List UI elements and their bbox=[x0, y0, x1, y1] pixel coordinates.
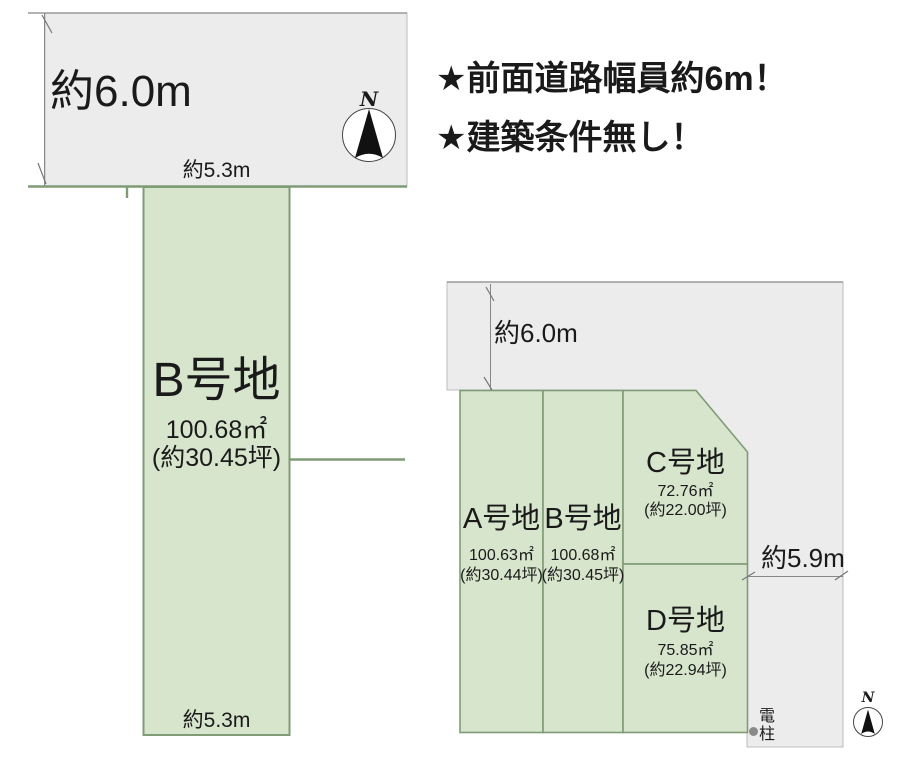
land-plot-diagram: ★前面道路幅員約6m！ ★建築条件無し！ 約6.0m 約5.3m N B号地 1… bbox=[0, 0, 904, 768]
plot-a-name: A号地 bbox=[460, 505, 543, 534]
plot-b-area-m2: 100.68㎡ bbox=[543, 548, 623, 564]
utility-pole-dot bbox=[749, 727, 758, 736]
right-road-width-side-label: 約5.9m bbox=[761, 545, 845, 571]
compass-n-label-small: N bbox=[860, 691, 876, 705]
plot-d-area-tsubo: (約22.94坪) bbox=[623, 663, 748, 679]
plot-a-area-m2: 100.63㎡ bbox=[460, 548, 543, 564]
plot-a-area-tsubo: (約30.44坪) bbox=[458, 568, 545, 584]
plot-b-name: B号地 bbox=[543, 505, 623, 534]
plot-b-large-area-tsubo: (約30.45坪) bbox=[143, 446, 290, 471]
plot-d-area-m2: 75.85㎡ bbox=[623, 643, 748, 659]
left-road-width-label: 約6.0m bbox=[50, 70, 192, 114]
compass-n-label: N bbox=[356, 89, 382, 109]
plot-b-large-area-m2: 100.68㎡ bbox=[143, 418, 290, 443]
plot-b-large-name: B号地 bbox=[143, 357, 290, 405]
left-frontage-top-label: 約5.3m bbox=[143, 160, 290, 181]
right-road-width-top-label: 約6.0m bbox=[494, 320, 578, 346]
left-frontage-bottom-label: 約5.3m bbox=[143, 710, 290, 731]
utility-pole-label: 電柱 bbox=[759, 708, 778, 745]
plot-b-area-tsubo: (約30.45坪) bbox=[541, 568, 625, 584]
plot-c-area-m2: 72.76㎡ bbox=[623, 484, 748, 500]
plot-c-area-tsubo: (約22.00坪) bbox=[623, 503, 748, 519]
headline-road-width: ★前面道路幅員約6m！ bbox=[436, 62, 788, 96]
plot-c-name: C号地 bbox=[623, 449, 748, 478]
headline-no-conditions: ★建築条件無し！ bbox=[436, 121, 704, 155]
plot-d-name: D号地 bbox=[623, 607, 748, 636]
